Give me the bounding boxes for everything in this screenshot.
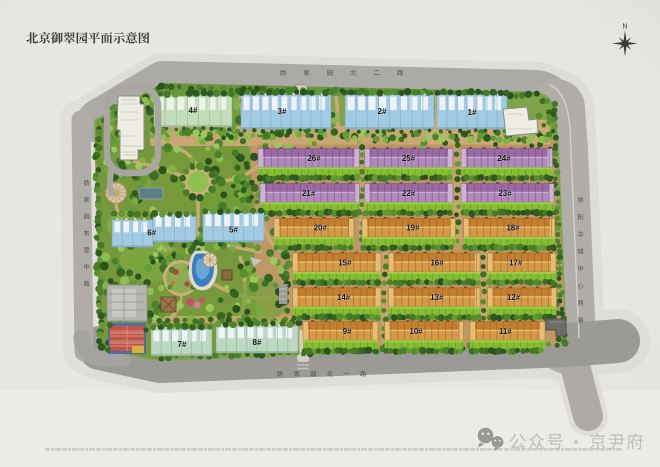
svg-text:23#: 23#: [498, 189, 512, 198]
svg-text:19#: 19#: [406, 224, 420, 233]
svg-text:24#: 24#: [497, 154, 511, 163]
svg-text:22#: 22#: [402, 189, 416, 198]
svg-text:5#: 5#: [229, 226, 238, 235]
svg-text:3#: 3#: [278, 107, 287, 116]
svg-text:11#: 11#: [499, 327, 512, 336]
svg-text:16#: 16#: [430, 258, 444, 267]
svg-text:15#: 15#: [338, 258, 352, 267]
svg-text:26#: 26#: [307, 154, 321, 163]
svg-text:18#: 18#: [506, 224, 520, 233]
svg-text:9#: 9#: [343, 327, 352, 336]
svg-text:4#: 4#: [189, 106, 198, 115]
svg-text:2#: 2#: [378, 107, 387, 116]
svg-text:12#: 12#: [507, 293, 521, 302]
svg-text:13#: 13#: [430, 293, 444, 302]
svg-text:25#: 25#: [402, 154, 416, 163]
svg-text:17#: 17#: [509, 258, 523, 267]
svg-text:14#: 14#: [337, 293, 351, 302]
svg-text:6#: 6#: [147, 229, 156, 238]
svg-text:7#: 7#: [178, 340, 187, 349]
svg-text:8#: 8#: [253, 338, 262, 347]
svg-text:21#: 21#: [302, 189, 316, 198]
svg-text:1#: 1#: [468, 108, 477, 117]
svg-text:20#: 20#: [314, 224, 328, 233]
svg-text:10#: 10#: [409, 327, 423, 336]
